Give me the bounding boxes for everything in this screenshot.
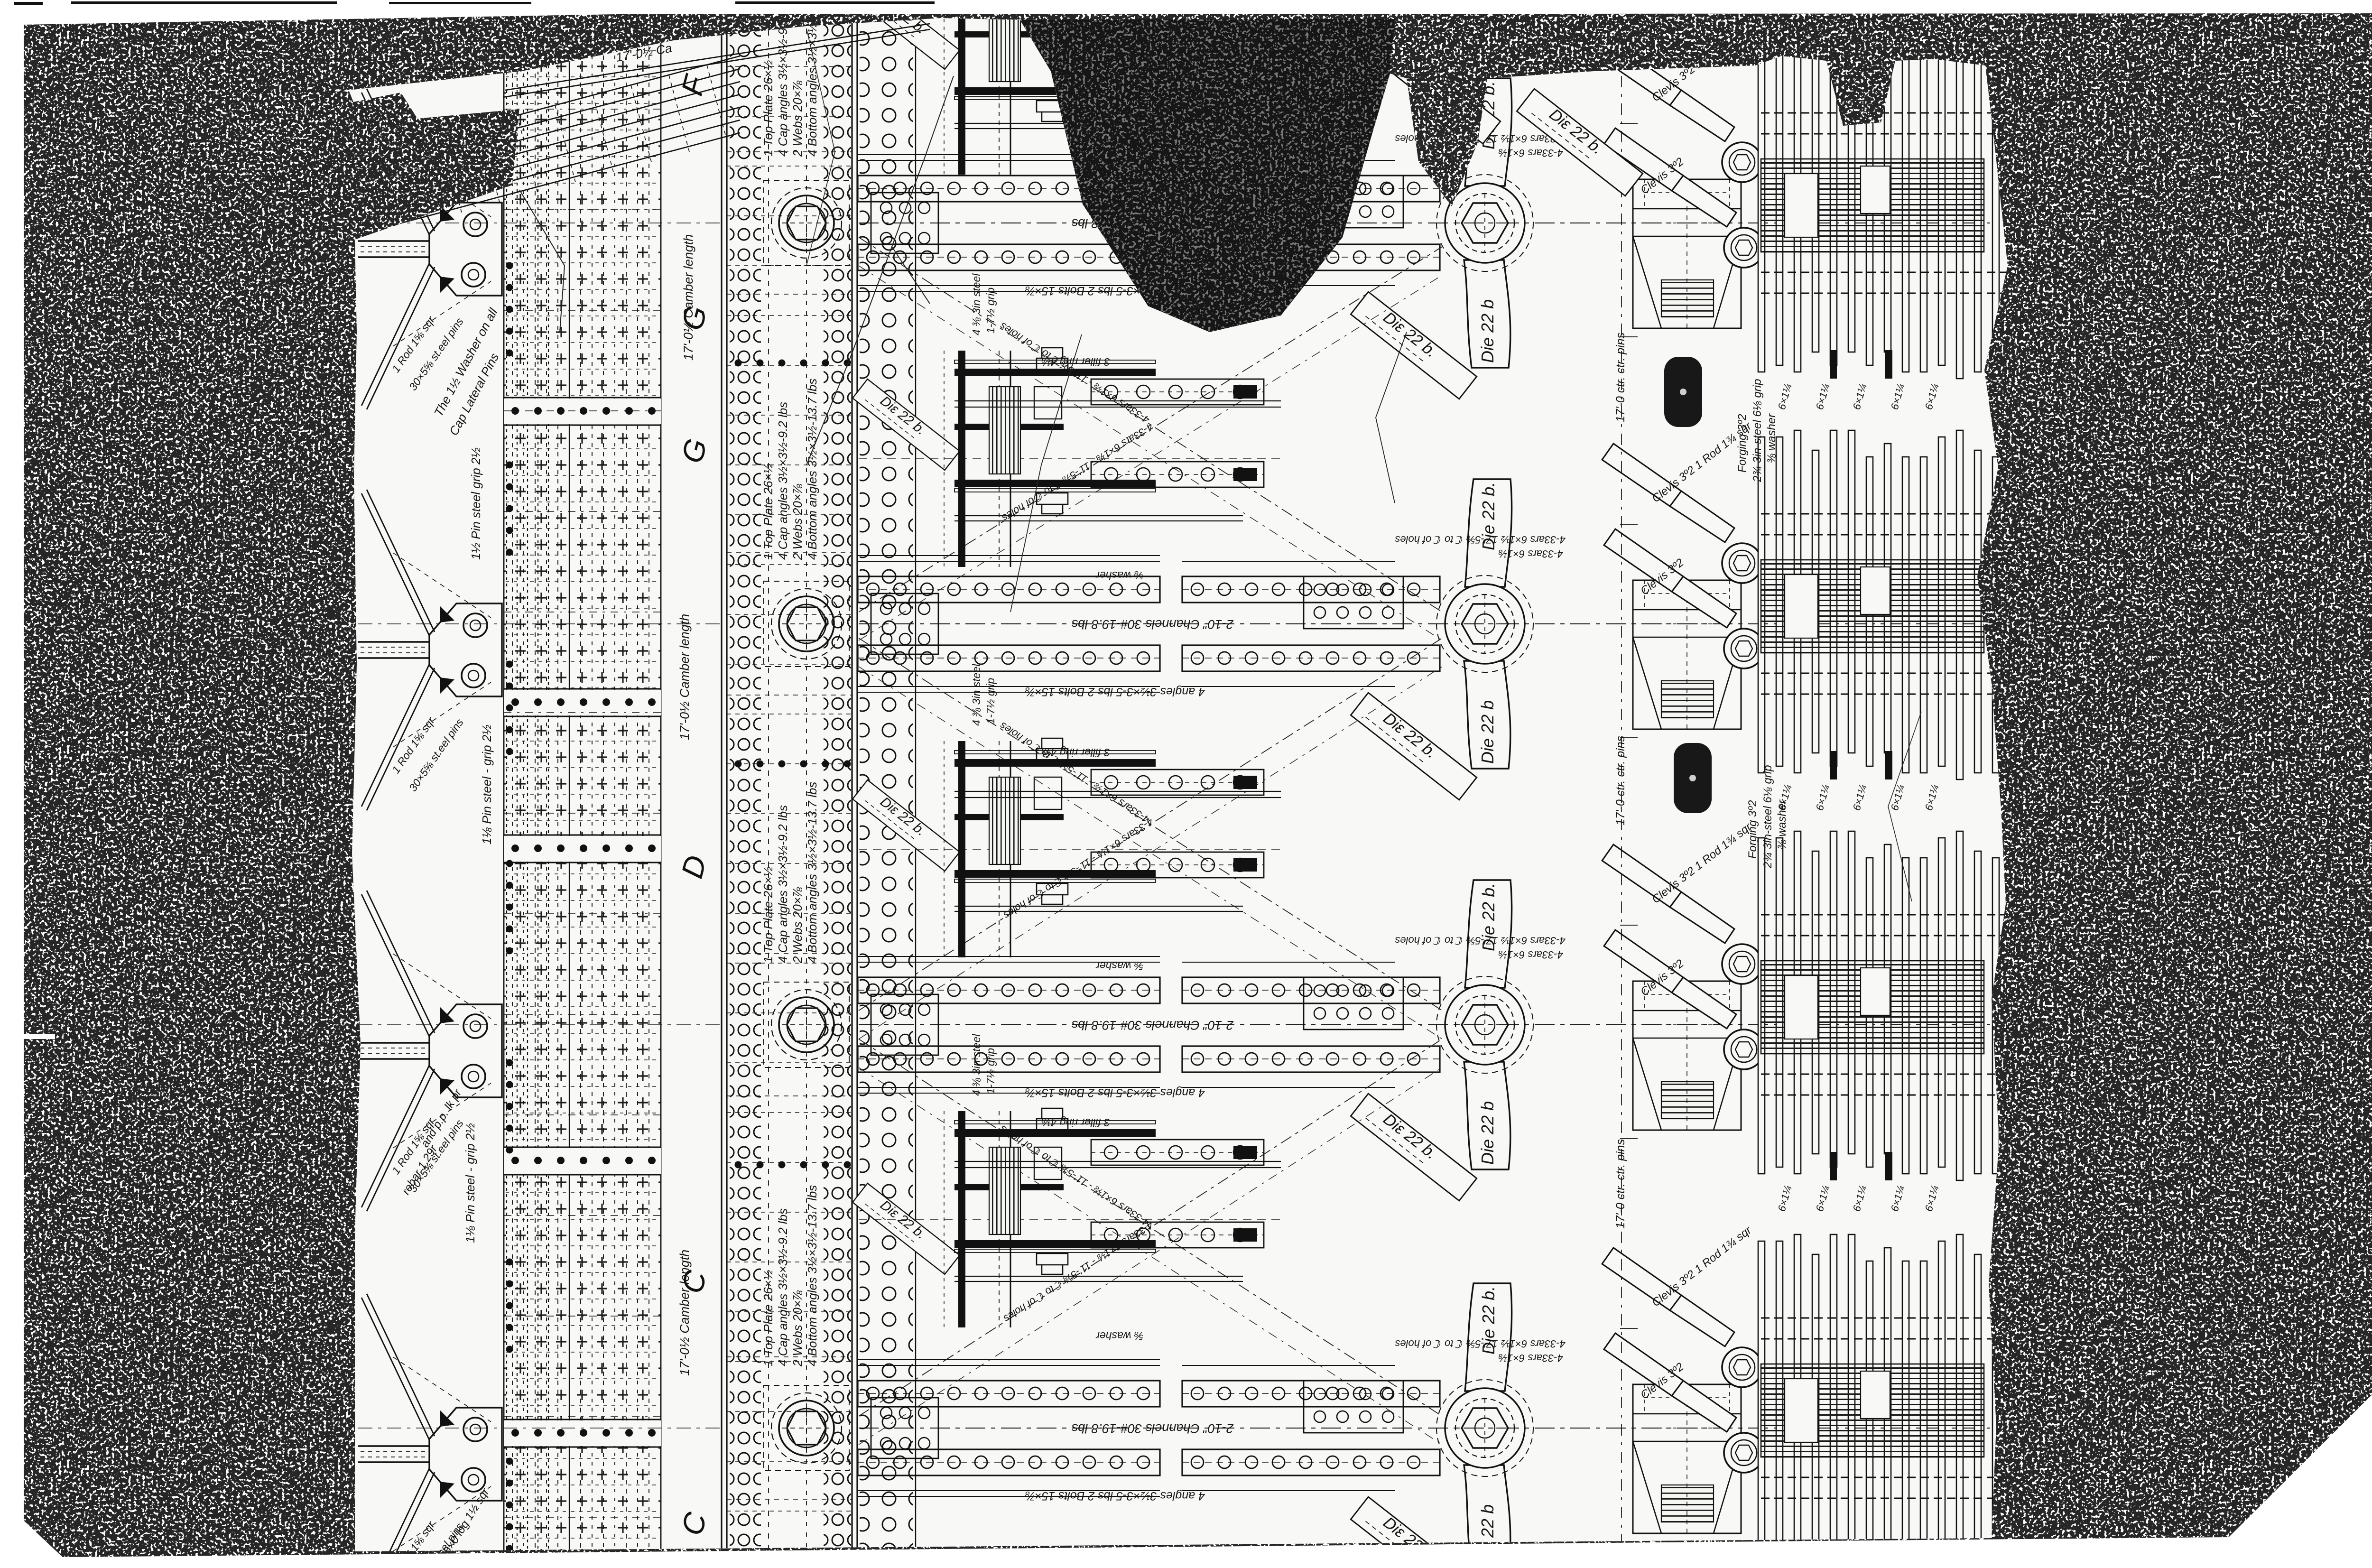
svg-text:4-33ars 6×1½ 17'-5⅝ ℂ to ℂ of: 4-33ars 6×1½ 17'-5⅝ ℂ to ℂ of holes [1395, 935, 1566, 946]
svg-text:2¾ 3in-steel 6⅛ grip: 2¾ 3in-steel 6⅛ grip [1761, 765, 1774, 869]
svg-text:4-33ars 6×1⅛: 4-33ars 6×1⅛ [1498, 147, 1563, 159]
svg-text:1 Top Plate 26×½: 1 Top Plate 26×½ [761, 866, 775, 963]
svg-text:4 Bottom angles 3½×3½-13.7 lbs: 4 Bottom angles 3½×3½-13.7 lbs [805, 782, 819, 963]
svg-text:1 Top Plate 26×½: 1 Top Plate 26×½ [761, 463, 775, 560]
svg-text:4 Bottom angles 3½×3½-13.7 lbs: 4 Bottom angles 3½×3½-13.7 lbs [805, 1185, 819, 1366]
svg-text:4-33ars 6×1⅛: 4-33ars 6×1⅛ [1498, 1352, 1563, 1364]
svg-text:2 Webs 20×⅞: 2 Webs 20×⅞ [790, 1290, 805, 1367]
svg-text:Forging 3º2: Forging 3º2 [1736, 414, 1749, 473]
svg-text:4-33ars 6×1⅛: 4-33ars 6×1⅛ [1498, 548, 1563, 560]
svg-text:17'-0½ Camber length: 17'-0½ Camber length [681, 234, 695, 361]
svg-text:1⅛ Pin steel - grip 2½: 1⅛ Pin steel - grip 2½ [463, 1123, 477, 1243]
svg-text:⅜ washer: ⅜ washer [1776, 799, 1788, 849]
svg-text:Forging 3º2: Forging 3º2 [1746, 800, 1759, 859]
svg-text:1⅛ Pin steel - grip 2½: 1⅛ Pin steel - grip 2½ [480, 724, 494, 844]
svg-text:4-33ars 6×1½ 17'-5⅝ ℂ to ℂ of: 4-33ars 6×1½ 17'-5⅝ ℂ to ℂ of holes [1395, 1338, 1566, 1350]
svg-text:4-33ars 6×1½ 17'-5⅝ ℂ to ℂ of: 4-33ars 6×1½ 17'-5⅝ ℂ to ℂ of holes [1395, 534, 1566, 546]
svg-text:1½ Pin steel grip 2½: 1½ Pin steel grip 2½ [469, 447, 483, 560]
svg-text:17'-0½ Camber length: 17'-0½ Camber length [677, 614, 692, 740]
svg-text:2 Webs 20×⅞: 2 Webs 20×⅞ [790, 80, 805, 157]
svg-text:17'-0 ctr. ctr. pins: 17'-0 ctr. ctr. pins [1614, 1139, 1627, 1229]
svg-text:2¾ 3in-steel 6⅛ grip: 2¾ 3in-steel 6⅛ grip [1751, 379, 1764, 482]
svg-text:1 Top Plate 26×½: 1 Top Plate 26×½ [761, 1270, 775, 1366]
svg-text:4 Cap angles 3½×3½-9.2 lbs: 4 Cap angles 3½×3½-9.2 lbs [776, 402, 790, 560]
svg-text:1 Top Plate 26×½: 1 Top Plate 26×½ [761, 60, 775, 157]
svg-text:4-33ars 6×1⅛: 4-33ars 6×1⅛ [1498, 949, 1563, 961]
svg-text:17'-0 ctr. ctr. pins: 17'-0 ctr. ctr. pins [1614, 333, 1627, 422]
svg-text:4 Bottom angles 3½×3½-13.7 lbs: 4 Bottom angles 3½×3½-13.7 lbs [805, 379, 819, 560]
svg-text:⅜ washer: ⅜ washer [1765, 413, 1778, 463]
svg-text:2 Webs 20×⅞: 2 Webs 20×⅞ [790, 483, 805, 560]
svg-text:4 Cap angles 3½×3½-9.2 lbs: 4 Cap angles 3½×3½-9.2 lbs [776, 805, 790, 963]
svg-text:17'-0 ctr. ctr. pins: 17'-0 ctr. ctr. pins [1614, 736, 1627, 826]
svg-text:4 Cap angles 3½×3½-9.2 lbs: 4 Cap angles 3½×3½-9.2 lbs [776, 1208, 790, 1366]
svg-text:2 Webs 20×⅞: 2 Webs 20×⅞ [790, 887, 805, 964]
